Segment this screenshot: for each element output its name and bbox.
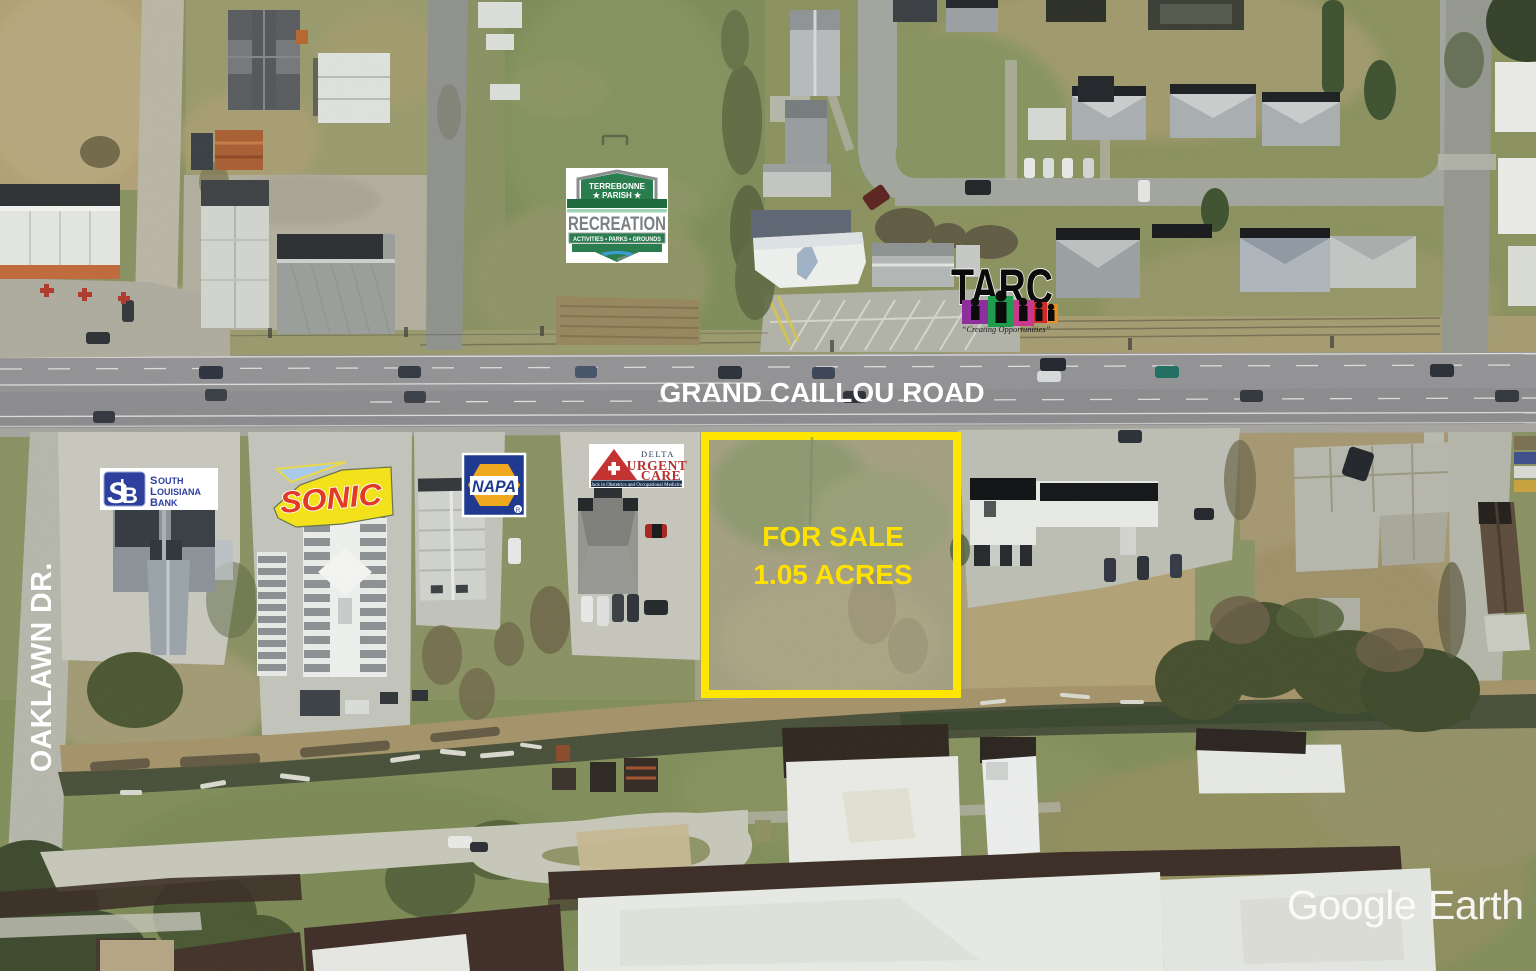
svg-text:R: R	[516, 508, 521, 514]
svg-text:NAPA: NAPA	[472, 477, 516, 496]
svg-text:★ PARISH ★: ★ PARISH ★	[593, 191, 642, 200]
svg-text:GRAND CAILLOU ROAD: GRAND CAILLOU ROAD	[659, 377, 984, 408]
svg-text:RECREATION: RECREATION	[568, 214, 666, 235]
svg-text:Google: Google	[1287, 882, 1416, 928]
svg-text:ACTIVITIES • PARKS • GROUNDS: ACTIVITIES • PARKS • GROUNDS	[573, 237, 661, 243]
svg-text:OAKLAWN DR.: OAKLAWN DR.	[26, 562, 58, 772]
svg-text:OUISIANA: OUISIANA	[157, 487, 202, 497]
svg-text:1.05 ACRES: 1.05 ACRES	[753, 559, 912, 590]
svg-text:ANK: ANK	[158, 498, 178, 508]
svg-text:Earth: Earth	[1428, 882, 1524, 928]
svg-text:B: B	[122, 483, 138, 508]
svg-text:B: B	[150, 497, 158, 509]
svg-text:Jack in Obstetrics and Occupat: Jack in Obstetrics and Occupational Medi…	[591, 483, 684, 488]
svg-text:OUTH: OUTH	[158, 476, 184, 486]
svg-text:FOR SALE: FOR SALE	[762, 521, 904, 552]
svg-text:TERREBONNE: TERREBONNE	[589, 181, 645, 191]
svg-text:“Creating Opportunities”: “Creating Opportunities”	[962, 324, 1051, 334]
